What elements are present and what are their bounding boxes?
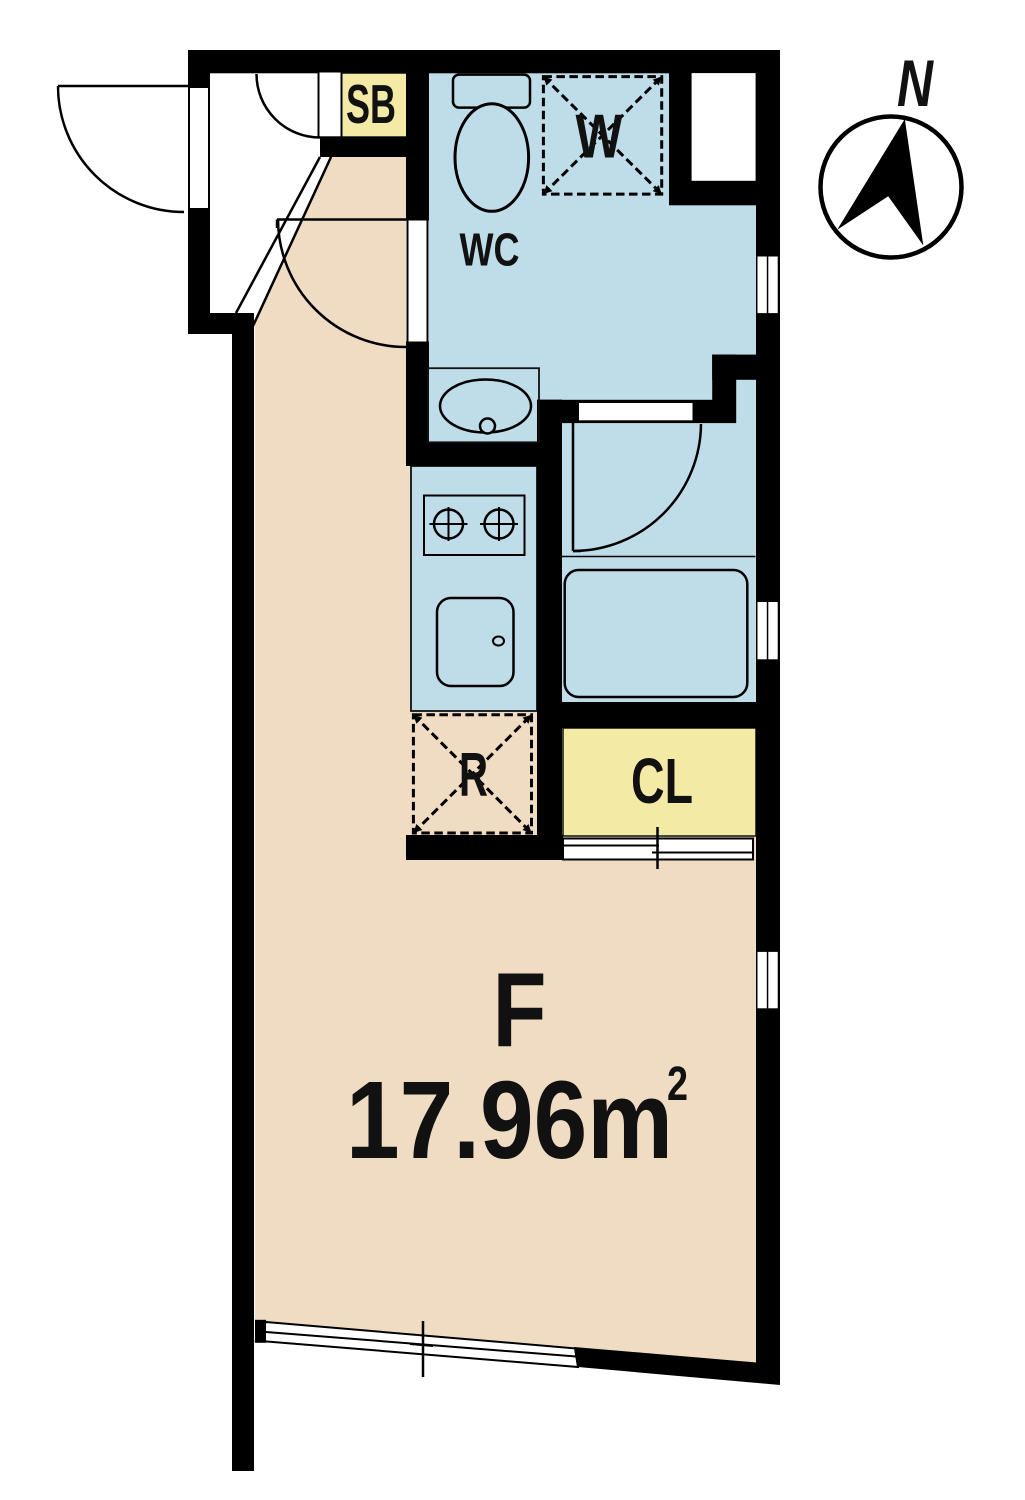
svg-text:CL: CL <box>631 745 693 817</box>
svg-text:W: W <box>576 103 623 172</box>
svg-text:N: N <box>897 46 934 120</box>
svg-text:R: R <box>459 741 488 810</box>
svg-text:2: 2 <box>667 1058 688 1111</box>
svg-text:WC: WC <box>460 224 520 276</box>
svg-text:17.96m: 17.96m <box>346 1059 673 1182</box>
svg-text:F: F <box>493 951 547 1069</box>
svg-text:SB: SB <box>346 73 396 135</box>
